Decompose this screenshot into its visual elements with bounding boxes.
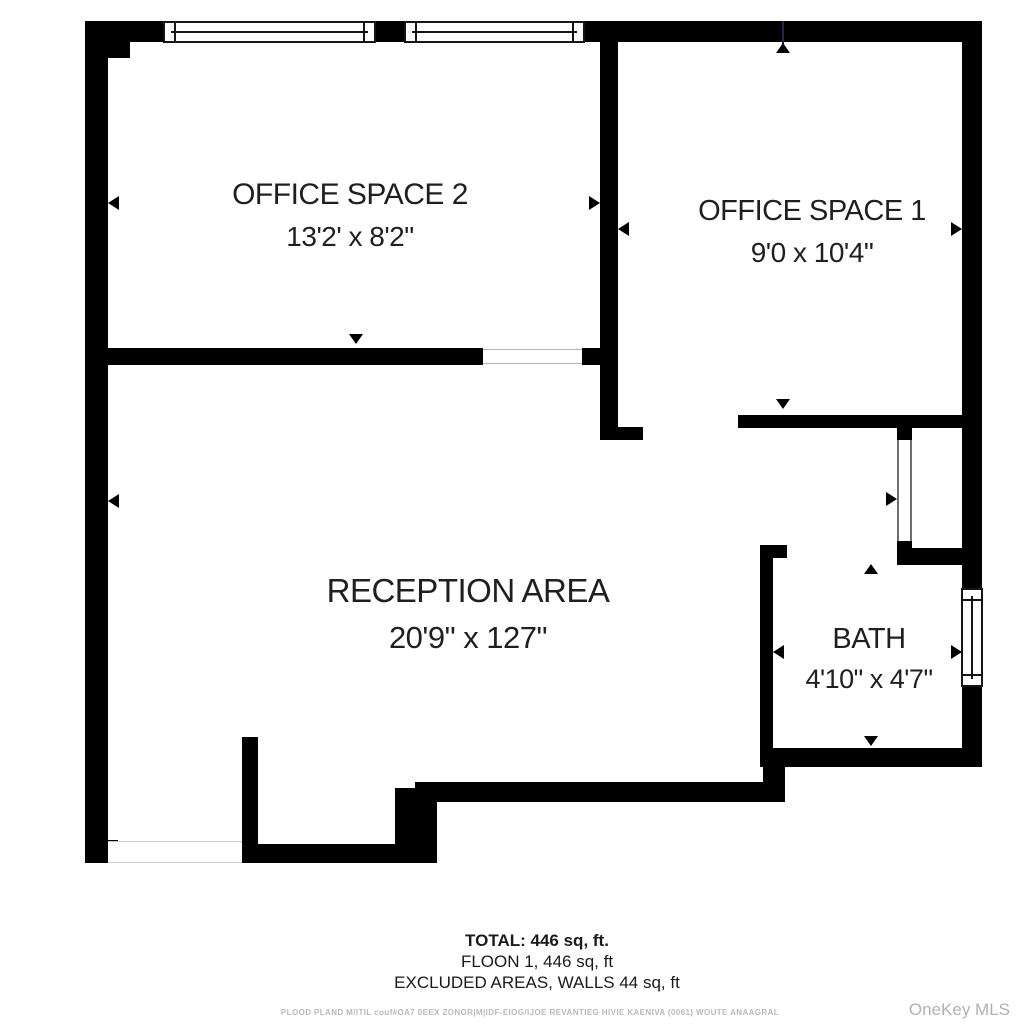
measure-arrow-left-icon xyxy=(108,494,119,508)
window-top-2 xyxy=(404,21,585,43)
window-end-cap xyxy=(415,23,417,41)
room-name: BATH xyxy=(770,623,968,656)
measure-arrow-left-icon xyxy=(618,222,629,236)
wall-office2-reception xyxy=(85,348,483,365)
door-opening-corridor xyxy=(897,440,912,541)
wall-left-exterior xyxy=(85,21,108,863)
door-opening-office2 xyxy=(483,349,582,364)
room-dimensions: 13'2' x 8'2" xyxy=(160,221,540,253)
room-name: RECEPTION AREA xyxy=(268,572,668,610)
room-label-reception: RECEPTION AREA 20'9" x 127" xyxy=(268,572,668,656)
window-bottom-left xyxy=(108,841,242,863)
wall-bottom-left-segment xyxy=(242,844,437,863)
room-name: OFFICE SPACE 1 xyxy=(632,195,992,228)
wall-door-jamb xyxy=(582,348,600,365)
floor-plan-page: { "rooms": { "office2": {"name": "OFFICE… xyxy=(0,0,1024,1024)
measure-arrow-down-icon xyxy=(776,399,790,409)
measure-arrow-down-icon xyxy=(349,334,363,344)
measure-arrow-down-icon xyxy=(864,736,878,746)
measure-arrow-right-icon xyxy=(886,492,897,506)
measure-arrow-up-icon xyxy=(864,564,878,574)
window-end-cap xyxy=(363,23,365,41)
room-dimensions: 4'10" x 4'7" xyxy=(770,664,968,695)
window-glass-line xyxy=(412,31,577,33)
area-summary: TOTAL: 446 sq, ft. FLOON 1, 446 sq, ft E… xyxy=(287,930,787,993)
onekey-mls-watermark: OneKey MLS xyxy=(909,1000,1010,1020)
wall-bath-top xyxy=(897,548,962,565)
fine-print-disclaimer: PLOOD PLAND M/ITIL couf#OA7 0EEX ZONOR|M… xyxy=(60,1008,1000,1017)
wall-top-middle-segment xyxy=(376,21,404,42)
wall-office-divider xyxy=(600,42,618,440)
wall-bottom-connector xyxy=(763,748,785,802)
room-dimensions: 9'0 x 10'4" xyxy=(632,237,992,269)
room-dimensions: 20'9" x 127" xyxy=(268,620,668,656)
floor-area-text: FLOON 1, 446 sq, ft xyxy=(287,951,787,972)
room-label-office2: OFFICE SPACE 2 13'2' x 8'2" xyxy=(160,178,540,253)
wall-reception-bottom-right xyxy=(415,782,763,802)
window-glass-line xyxy=(171,31,368,33)
wall-office-divider-foot xyxy=(618,427,643,440)
north-marker-arrow-icon xyxy=(776,43,790,53)
window-end-cap xyxy=(963,599,981,601)
wall-bath-bottom xyxy=(760,748,982,767)
room-label-office1: OFFICE SPACE 1 9'0 x 10'4" xyxy=(632,195,992,269)
room-name: OFFICE SPACE 2 xyxy=(160,178,540,212)
wall-corridor-door-top xyxy=(897,428,912,440)
wall-bath-left-stub xyxy=(760,545,787,558)
wall-bottom-stub xyxy=(242,737,258,863)
wall-top-left-corner-block xyxy=(85,21,130,58)
window-end-cap xyxy=(174,23,176,41)
window-top-1 xyxy=(163,21,376,43)
measure-arrow-left-icon xyxy=(108,196,119,210)
excluded-area-text: EXCLUDED AREAS, WALLS 44 sq, ft xyxy=(287,972,787,993)
room-label-bath: BATH 4'10" x 4'7" xyxy=(770,623,968,695)
window-glass-line xyxy=(971,596,973,679)
total-area-text: TOTAL: 446 sq, ft. xyxy=(287,930,787,951)
measure-arrow-right-icon xyxy=(589,196,600,210)
wall-office1-bottom xyxy=(738,415,962,428)
window-end-cap xyxy=(572,23,574,41)
